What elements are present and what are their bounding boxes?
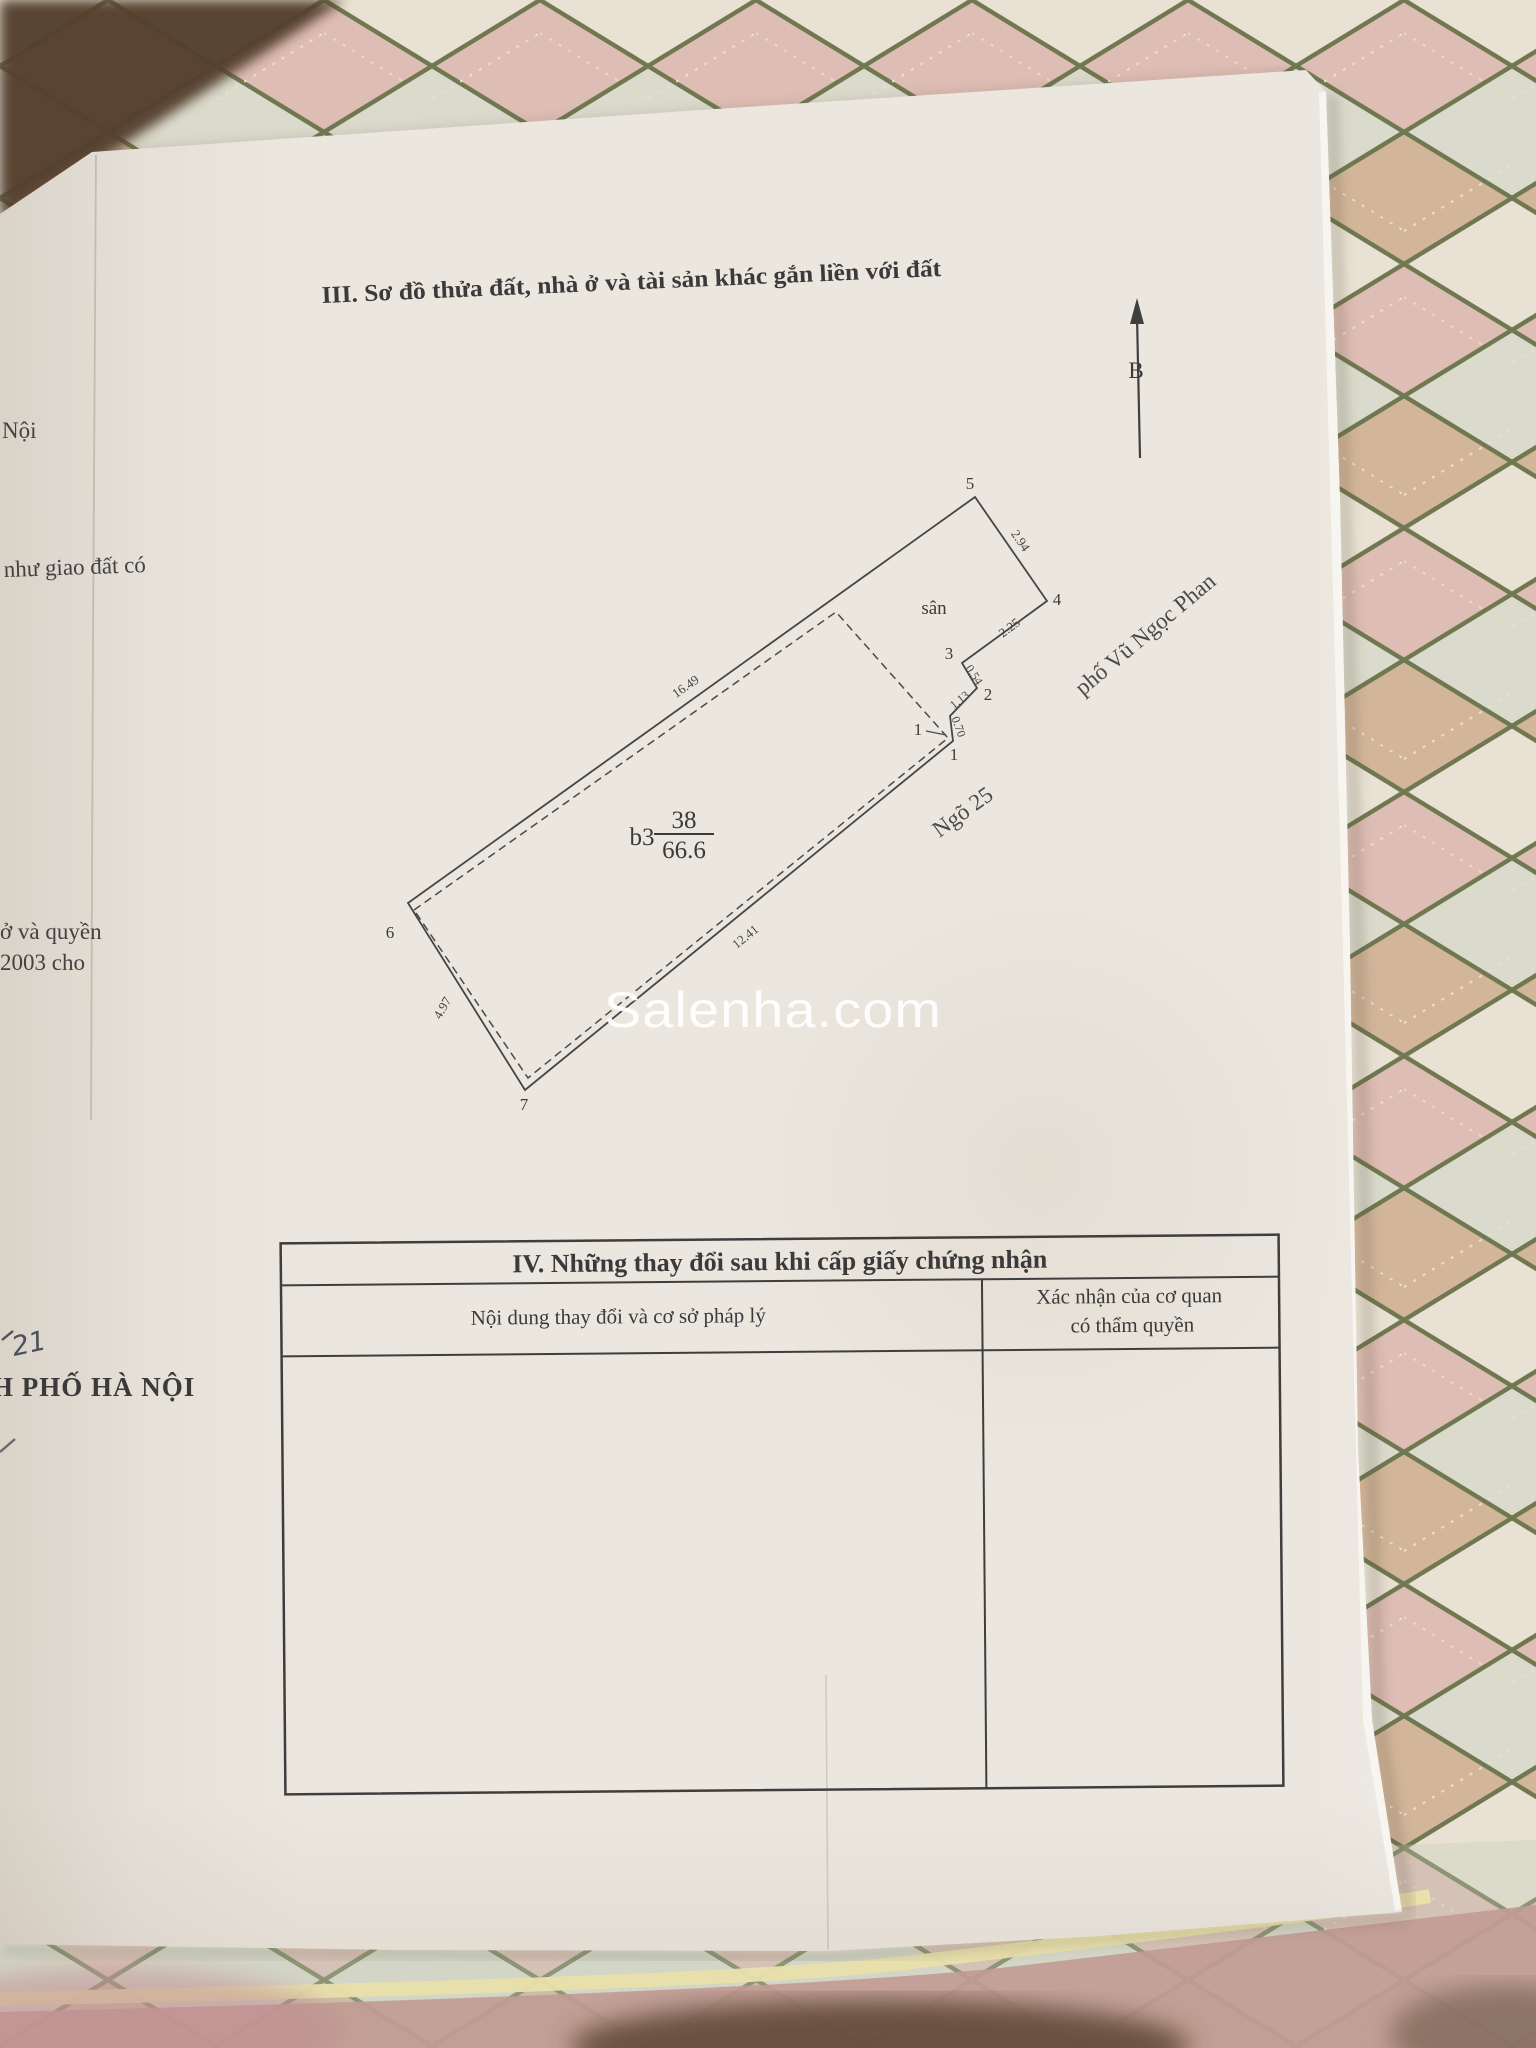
table-col-confirm-header-line2: có thẩm quyền bbox=[1070, 1312, 1194, 1337]
left-fragment-pho-ha-noi: H PHỐ HÀ NỘI bbox=[0, 1371, 195, 1402]
vertex-2-label: 2 bbox=[984, 685, 993, 704]
yard-label: sân bbox=[921, 598, 947, 619]
vertex-1-left-label: 1 bbox=[914, 720, 923, 739]
vertex-4-label: 4 bbox=[1053, 590, 1062, 609]
left-fragment-nhu-giao-dat-co: như giao đất có bbox=[3, 552, 146, 582]
left-fragment-noi: Nội bbox=[2, 418, 37, 443]
vertex-7-label: 7 bbox=[520, 1095, 529, 1114]
vertex-1-label: 1 bbox=[950, 745, 959, 764]
watermark-text: Salenha.com bbox=[604, 982, 942, 1038]
vertex-6-label: 6 bbox=[386, 923, 395, 942]
north-label: B bbox=[1128, 358, 1143, 383]
section-iv-title: IV. Những thay đổi sau khi cấp giấy chứn… bbox=[512, 1245, 1048, 1279]
photo-of-land-certificate: III. Sơ đồ thửa đất, nhà ở và tài sản kh… bbox=[0, 0, 1536, 2048]
certificate-photo-canvas: III. Sơ đồ thửa đất, nhà ở và tài sản kh… bbox=[0, 0, 1536, 2048]
parcel-number-label: 38 bbox=[672, 807, 697, 834]
house-code-label: b3 bbox=[630, 824, 655, 851]
vertex-5-label: 5 bbox=[966, 474, 975, 493]
parcel-area-label: 66.6 bbox=[662, 837, 706, 864]
table-col-change-header: Nội dung thay đổi và cơ sở pháp lý bbox=[471, 1303, 767, 1330]
vertex-3-label: 3 bbox=[945, 644, 954, 663]
left-fragment-o-va-quyen: ở và quyền bbox=[0, 919, 102, 944]
table-col-confirm-header-line1: Xác nhận của cơ quan bbox=[1036, 1283, 1223, 1309]
left-fragment-2003-cho: 2003 cho bbox=[0, 950, 85, 975]
